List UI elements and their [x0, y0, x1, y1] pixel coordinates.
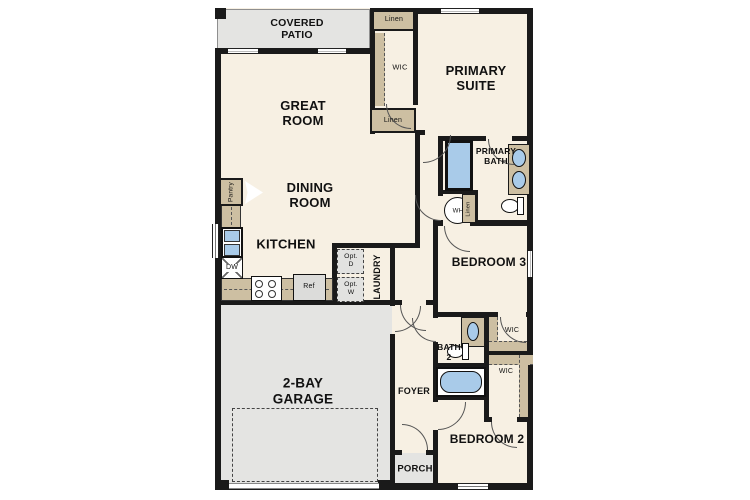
- kitchen-window: [212, 224, 219, 258]
- closet-label-linen: Linen: [384, 117, 402, 125]
- room-label-kitchen: KITCHEN: [256, 238, 315, 253]
- room-label-primary-bath: PRIMARY BATH: [476, 147, 516, 167]
- wall: [512, 136, 533, 141]
- wall: [470, 220, 533, 226]
- appliance-label-opt-d: Opt. D: [344, 253, 358, 269]
- wall: [433, 430, 438, 488]
- shower: [445, 140, 473, 191]
- wall: [332, 243, 420, 248]
- garage-door-post: [215, 480, 229, 490]
- vanity-sink: [467, 322, 479, 341]
- window: [458, 483, 488, 490]
- appliance-label-dw: DW: [225, 264, 239, 272]
- room-label-laundry: LAUNDRY: [372, 254, 382, 299]
- closet-label-wic: WIC: [499, 368, 513, 376]
- window: [318, 48, 346, 54]
- room-label-porch: PORCH: [397, 465, 432, 476]
- closet-label-wic: WIC: [505, 327, 519, 335]
- appliance-label-wh: WH: [453, 207, 464, 214]
- closet-shelf: [519, 355, 528, 417]
- appliance-label-opt-w: Opt. W: [344, 281, 358, 297]
- sink-basin: [224, 244, 240, 256]
- room-label-covered-patio: COVERED PATIO: [270, 17, 323, 41]
- room-label-bath2: BATH 2: [437, 343, 461, 363]
- garage-door: [229, 483, 379, 489]
- wall: [426, 300, 438, 305]
- appliance-label-ref: Ref: [303, 283, 315, 291]
- window: [527, 251, 533, 277]
- room-label-garage: 2-BAY GARAGE: [273, 375, 333, 406]
- wall: [517, 417, 533, 422]
- wall: [415, 130, 420, 248]
- wall: [390, 450, 395, 490]
- floor-plan: COVERED PATIO GREAT ROOM PRIMARY SUITE L…: [0, 0, 750, 500]
- vanity-sink: [512, 171, 526, 189]
- wall: [390, 334, 395, 450]
- closet-label-pantry: Pantry: [227, 182, 234, 202]
- room-label-foyer: FOYER: [398, 386, 430, 396]
- room-label-dining-room: DINING ROOM: [287, 181, 334, 211]
- room-label-great-room: GREAT ROOM: [280, 99, 326, 129]
- sink-basin: [224, 230, 240, 242]
- room-label-bedroom3: BEDROOM 3: [452, 256, 526, 270]
- wall: [526, 312, 533, 317]
- wall: [390, 450, 402, 455]
- toilet-tank: [517, 197, 524, 215]
- closet-label-wic: WIC: [392, 64, 407, 73]
- window: [441, 8, 479, 14]
- room-label-bedroom2: BEDROOM 2: [450, 433, 524, 447]
- closet-label-linen: Linen: [466, 201, 473, 216]
- toilet-tank: [462, 343, 469, 360]
- patio-post: [215, 8, 226, 19]
- room-label-primary-suite: PRIMARY SUITE: [446, 64, 507, 94]
- closet-shelf: [375, 33, 385, 106]
- closet-label-linen: Linen: [385, 16, 403, 24]
- window: [228, 48, 258, 54]
- range-stove: [251, 276, 282, 301]
- garage-door-area: [232, 408, 378, 482]
- wall: [390, 245, 395, 303]
- bathtub-basin: [440, 371, 482, 393]
